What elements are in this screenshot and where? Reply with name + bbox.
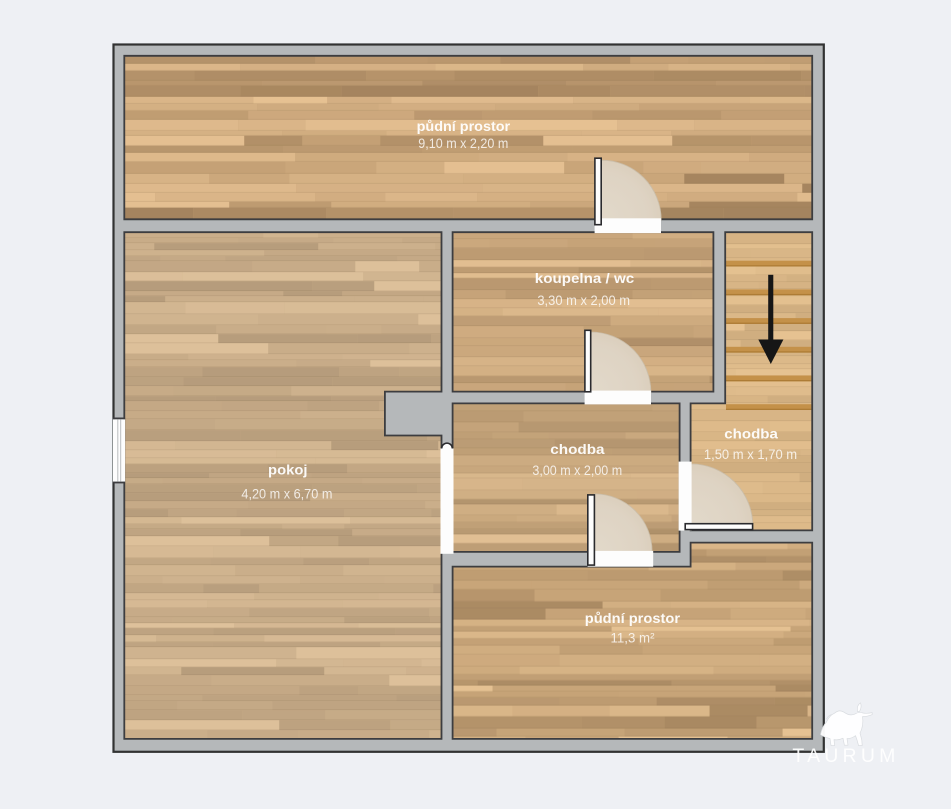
svg-text:9,10 m x 2,20 m: 9,10 m x 2,20 m <box>418 136 508 151</box>
svg-text:1,50 m x 1,70 m: 1,50 m x 1,70 m <box>704 447 797 462</box>
svg-text:4,20 m x 6,70 m: 4,20 m x 6,70 m <box>241 487 332 502</box>
svg-text:chodba: chodba <box>724 425 778 441</box>
svg-text:11,3 m²: 11,3 m² <box>611 631 655 646</box>
svg-text:půdní prostor: půdní prostor <box>417 118 511 134</box>
svg-text:3,00 m x 2,00 m: 3,00 m x 2,00 m <box>532 463 622 478</box>
svg-text:3,30 m x 2,00 m: 3,30 m x 2,00 m <box>537 293 630 308</box>
svg-text:pokoj: pokoj <box>268 462 308 478</box>
svg-text:chodba: chodba <box>550 441 605 457</box>
svg-text:TAURUM: TAURUM <box>792 745 899 767</box>
svg-text:koupelna / wc: koupelna / wc <box>535 270 635 286</box>
svg-text:půdní prostor: půdní prostor <box>585 610 681 626</box>
